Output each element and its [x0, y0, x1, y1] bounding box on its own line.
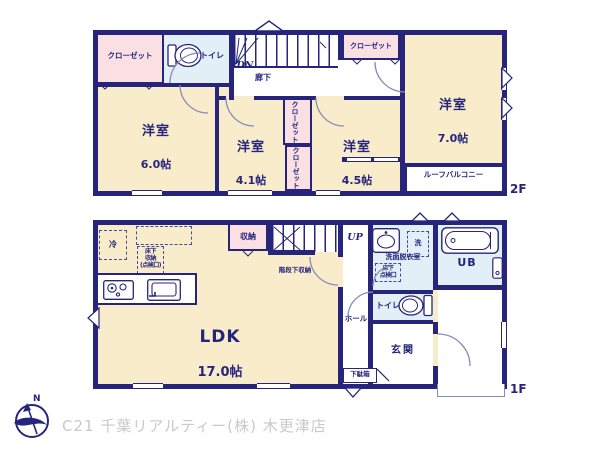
- bedroom-45-name: 洋室: [327, 141, 387, 156]
- closet-2f-mid-lower-label: クローゼット: [292, 147, 300, 189]
- toilet-icon-2f: [167, 41, 203, 71]
- shoe-cabinet-label: 下駄箱: [343, 371, 377, 378]
- compass-icon: [14, 403, 48, 437]
- under-stair-storage-label: 階段下収納: [270, 267, 320, 274]
- closet-2f-mid-upper-label: クローゼット: [291, 101, 299, 143]
- wall: [433, 366, 438, 384]
- roof-balcony-label: ルーフバルコニー: [405, 171, 502, 180]
- compass-north-label: N: [33, 394, 41, 404]
- hall-1f: [343, 225, 368, 384]
- entrance-label: 玄関: [373, 345, 433, 357]
- ldk-label: LDK 17.0帖: [185, 310, 255, 400]
- bedroom-41-size: 4.1帖: [221, 175, 281, 188]
- wall: [344, 96, 405, 100]
- stairs-dn-label: DN: [232, 61, 258, 72]
- wall: [98, 83, 234, 87]
- bedroom-6-name: 洋室: [106, 125, 206, 140]
- floor-1f-tag: 1F: [510, 382, 527, 396]
- entry-court: [438, 290, 502, 384]
- floor-2f-plan: クローゼット トイレ DN 廊下 クローゼット クローゼット クローゼット: [93, 30, 507, 196]
- underfloor-hatch-label: 床下 点検口: [375, 266, 401, 280]
- wall: [219, 96, 226, 100]
- window-marker: [501, 98, 507, 120]
- bedroom-41-name: 洋室: [221, 141, 281, 156]
- ldk-size: 17.0帖: [185, 366, 255, 381]
- window-marker: [132, 190, 162, 196]
- bathtub-icon: [441, 227, 499, 254]
- floor-2f-tag: 2F: [510, 182, 527, 196]
- bedroom-6-label: 洋室 6.0帖: [106, 107, 206, 190]
- window-marker: [501, 68, 507, 90]
- unit-bath-label: UB: [438, 257, 496, 270]
- storage-1f-label: 収納: [228, 232, 268, 241]
- fridge-label: 冷: [99, 240, 127, 249]
- company-name: C21 千葉リアルティー(株) 木更津店: [62, 415, 327, 436]
- window-marker: [316, 190, 340, 196]
- entrance-porch: [437, 384, 505, 397]
- window-marker: [257, 383, 290, 389]
- closet-2f-top-right-label: クローゼット: [343, 42, 399, 50]
- floor-plan-canvas: クローゼット トイレ DN 廊下 クローゼット クローゼット クローゼット: [0, 0, 600, 450]
- bedroom-7-name: 洋室: [423, 99, 483, 114]
- wall: [268, 250, 315, 255]
- washbasin-icon: [372, 228, 400, 253]
- stairs-1f: [272, 225, 338, 252]
- hall-label: ホール: [342, 315, 370, 324]
- stairs-up-label: UP: [341, 233, 369, 244]
- bedroom-7-label: 洋室 7.0帖: [423, 81, 483, 164]
- window-marker: [501, 322, 507, 348]
- washroom-label: 洗面脱衣室: [371, 253, 435, 261]
- washer-label: 洗: [407, 239, 429, 247]
- cupboard-space: [136, 226, 192, 245]
- hallway-label: 廊下: [238, 73, 288, 82]
- underfloor-storage-label: 床下 収納 (点検口): [137, 249, 164, 270]
- bedroom-6-size: 6.0帖: [106, 159, 206, 172]
- stove-icon: [103, 280, 134, 300]
- bath-door-handle-icon: [492, 257, 503, 279]
- bedroom-45-size: 4.5帖: [327, 175, 387, 188]
- bedroom-7-size: 7.0帖: [423, 133, 483, 146]
- window-marker: [133, 383, 163, 389]
- hallway-2f-east: [338, 60, 400, 96]
- sink-icon: [147, 279, 181, 301]
- toilet-icon-1f: [397, 294, 433, 318]
- wall: [215, 83, 219, 191]
- window-marker: [228, 190, 272, 196]
- closet-2f-top-left-label: クローゼット: [98, 52, 162, 61]
- wall: [433, 322, 438, 334]
- wall: [229, 35, 234, 100]
- ldk-name: LDK: [185, 328, 255, 348]
